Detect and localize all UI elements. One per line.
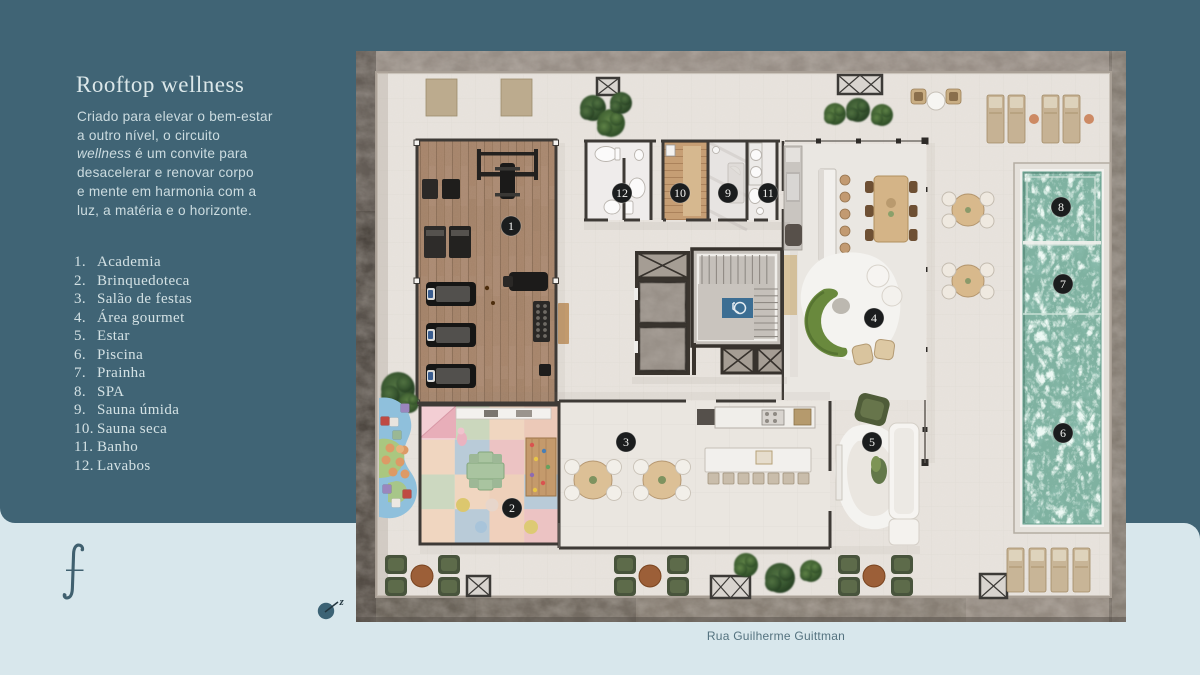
svg-text:2: 2 (509, 501, 515, 515)
svg-text:11: 11 (762, 186, 774, 200)
svg-text:4: 4 (871, 311, 877, 325)
svg-text:6: 6 (1060, 426, 1066, 440)
svg-text:7: 7 (1060, 277, 1066, 291)
svg-text:8: 8 (1058, 200, 1064, 214)
svg-text:5: 5 (869, 435, 875, 449)
svg-text:1: 1 (508, 219, 514, 233)
svg-text:z: z (339, 596, 345, 608)
svg-text:12: 12 (616, 186, 628, 200)
svg-text:9: 9 (725, 186, 731, 200)
svg-text:3: 3 (623, 435, 629, 449)
svg-text:10: 10 (674, 186, 686, 200)
